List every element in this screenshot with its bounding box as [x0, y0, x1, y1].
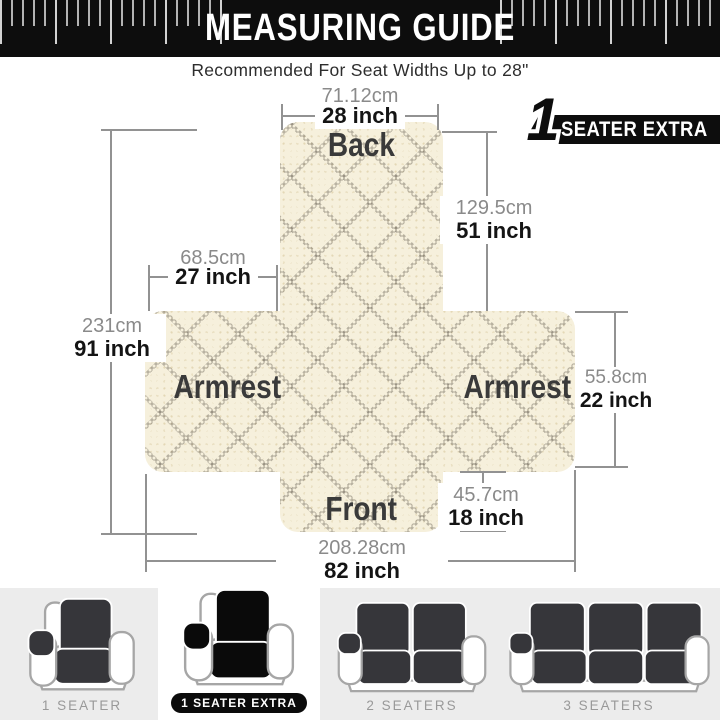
variant-label: 1 SEATER [42, 698, 122, 713]
variant-label: 1 SEATER EXTRA [171, 693, 307, 713]
total-length-cm: 231cm [60, 315, 164, 337]
variant-label: 3 SEATERS [563, 698, 654, 713]
recliner-icon [24, 597, 140, 693]
top-width-inch: 28 inch [315, 103, 405, 129]
front-length-inch: 18 inch [440, 506, 532, 530]
back-length-cm: 129.5cm [442, 197, 546, 219]
page-title: MEASURING GUIDE [205, 7, 515, 50]
sofa-icon [507, 601, 712, 693]
armrest-height-cm: 55.8cm [576, 368, 656, 389]
variant-3-seaters[interactable]: 3 SEATERS [498, 588, 720, 720]
armrest-right-label: Armrest [452, 368, 582, 406]
variant-1-seater[interactable]: 1 SEATER [8, 588, 156, 720]
loveseat-icon [337, 601, 487, 693]
armrest-height-inch: 22 inch [576, 389, 656, 412]
total-length-inch: 91 inch [60, 337, 164, 361]
armrest-width-inch: 27 inch [168, 264, 258, 290]
total-width-inch: 82 inch [278, 559, 446, 583]
back-label: Back [280, 126, 443, 164]
badge-number-one-icon: 1 [516, 90, 570, 148]
variant-label: 2 SEATERS [366, 698, 457, 713]
total-width-cm: 208.28cm [278, 537, 446, 559]
variant-1-seater-extra[interactable]: 1 SEATER EXTRA [158, 588, 320, 720]
measuring-guide-infographic: MEASURING GUIDE Recommended For Seat Wid… [0, 0, 720, 720]
variant-2-seaters[interactable]: 2 SEATERS [328, 588, 496, 720]
armrest-left-label: Armrest [148, 368, 306, 406]
front-label: Front [280, 490, 443, 528]
front-length-cm: 45.7cm [440, 484, 532, 506]
recliner-extra-icon [178, 588, 300, 688]
svg-text:1: 1 [526, 90, 559, 148]
header-bar: MEASURING GUIDE [0, 0, 720, 57]
back-length-inch: 51 inch [442, 219, 546, 243]
subtitle: Recommended For Seat Widths Up to 28" [0, 60, 720, 81]
badge-label: SEATER EXTRA [561, 118, 708, 142]
